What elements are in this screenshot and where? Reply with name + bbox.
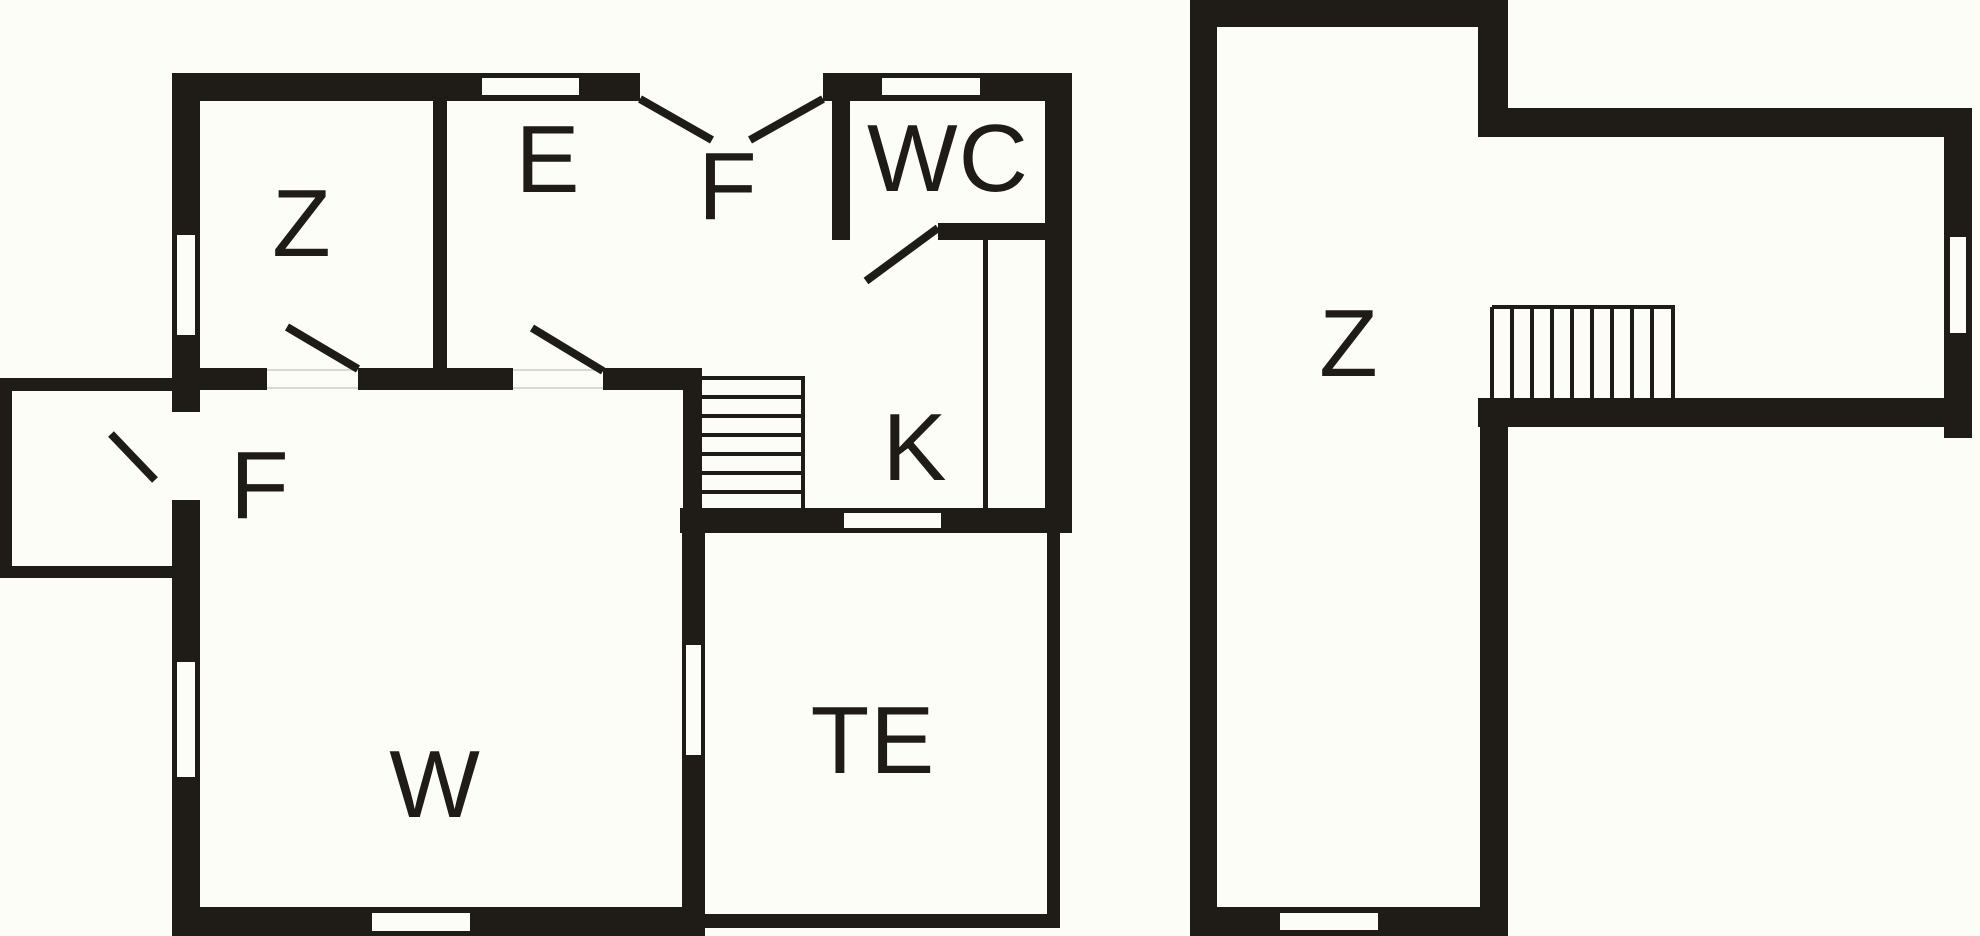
room-label-hall-f-top: F [698, 132, 758, 242]
door-leaf [287, 327, 358, 369]
door-leaf [750, 99, 823, 140]
room-label-bedroom-z: Z [272, 169, 332, 279]
room-label-living-w: W [389, 730, 481, 840]
room-label-terrace-te: TE [811, 686, 936, 796]
door-leaf [866, 228, 938, 281]
door-leaf [532, 328, 603, 371]
room-label-room-e: E [515, 105, 580, 215]
room-label-kitchen-k: K [882, 393, 947, 503]
room-label-wc: WC [867, 104, 1029, 214]
room-label-attic-z: Z [1319, 289, 1379, 399]
floor-plan: ZEFWCKFWTEZ [0, 0, 1980, 936]
door-leaf [111, 434, 155, 480]
room-label-hall-f-left: F [230, 431, 290, 541]
